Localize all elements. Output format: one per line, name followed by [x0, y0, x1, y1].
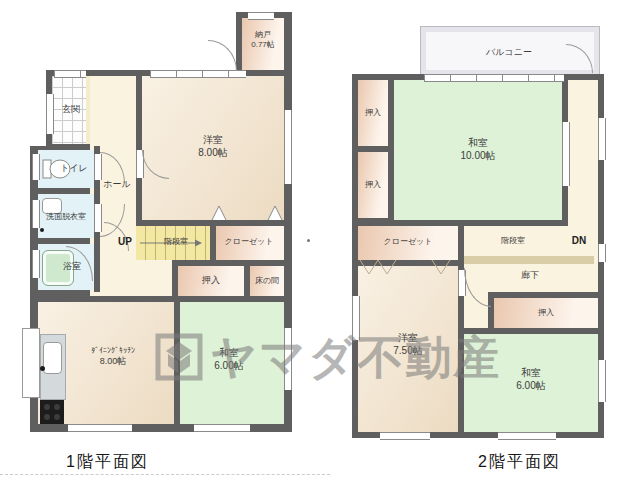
floor1-caption: 1階平面図	[66, 452, 149, 473]
hall-lower	[136, 260, 172, 296]
window	[32, 154, 40, 180]
room-label-japanese10: 和室 10.00帖	[460, 136, 495, 162]
window	[498, 432, 556, 440]
window	[352, 296, 360, 340]
window	[32, 200, 40, 228]
floor1-cutout	[30, 70, 46, 146]
room-label-stairs-2f: 階段室	[501, 236, 525, 246]
room-label-oshiire-upper: 押入	[365, 108, 381, 118]
window	[32, 250, 40, 278]
room-label-western75: 洋室 7.50帖	[393, 331, 422, 357]
room-label-oshiire-1f: 押入	[202, 275, 220, 287]
room-label-closet-1f: クローゼット	[225, 237, 274, 247]
room-label-tokonoma: 床の間	[255, 276, 279, 286]
room-label-oshiire-lower: 押入	[365, 180, 381, 190]
corridor-strip	[464, 256, 594, 264]
closet-door-marks-1f	[208, 204, 288, 222]
floor2-caption: 2階平面図	[478, 452, 561, 473]
window	[284, 328, 292, 390]
closet-door-marks-2f	[358, 258, 458, 276]
window	[284, 110, 292, 184]
stairs-down-label: DN	[572, 235, 586, 246]
stray-dot	[307, 239, 310, 242]
kitchen-sink-icon	[43, 342, 62, 374]
room-label-dk: ﾀﾞｲﾆﾝｸﾞｷｯﾁﾝ 8.00帖	[91, 346, 135, 368]
room-label-western8: 洋室 8.00帖	[198, 133, 227, 159]
entrance-door	[54, 70, 86, 78]
scan-artifact-line	[0, 474, 330, 475]
room-label-oshiire-south: 押入	[538, 308, 554, 318]
room-label-hall: ホール	[103, 179, 130, 191]
window	[150, 70, 246, 78]
room-label-senmen: 洗面脱衣室	[46, 212, 86, 222]
window	[598, 244, 606, 262]
floor-plan-page: 納戸 0.77帖 玄関 トイレ 洗面脱衣室 浴室 ホール UP 階段室 クローゼ…	[0, 0, 640, 478]
window	[68, 424, 132, 432]
stairs-up-label: UP	[118, 236, 132, 247]
window	[598, 118, 606, 160]
room-label-japanese6-1f: 和室 6.00帖	[214, 346, 243, 372]
stove-icon	[40, 400, 64, 424]
window	[46, 94, 54, 134]
room-label-balcony: バルコニー	[486, 47, 532, 59]
room-label-toilet: トイレ	[60, 163, 88, 175]
room-label-nando: 納戸 0.77帖	[251, 30, 275, 51]
room-label-japanese6-2f: 和室 6.00帖	[516, 366, 545, 392]
faucet-dot	[40, 366, 45, 371]
shoji-opening	[562, 122, 570, 186]
window	[598, 360, 606, 402]
room-label-genkan: 玄関	[62, 104, 80, 116]
bay-window	[22, 328, 40, 398]
room-label-closet-2f: クローゼット	[384, 237, 433, 247]
drain-dot	[40, 228, 44, 232]
window	[248, 12, 274, 20]
room-label-stairs-1f: 階段室	[164, 237, 188, 247]
balcony-sliding-door	[424, 74, 564, 82]
window	[380, 432, 430, 440]
room-label-bath: 浴室	[63, 261, 81, 273]
room-label-corridor: 廊下	[521, 270, 539, 282]
window	[194, 424, 250, 432]
door-arc-nando	[208, 40, 237, 71]
